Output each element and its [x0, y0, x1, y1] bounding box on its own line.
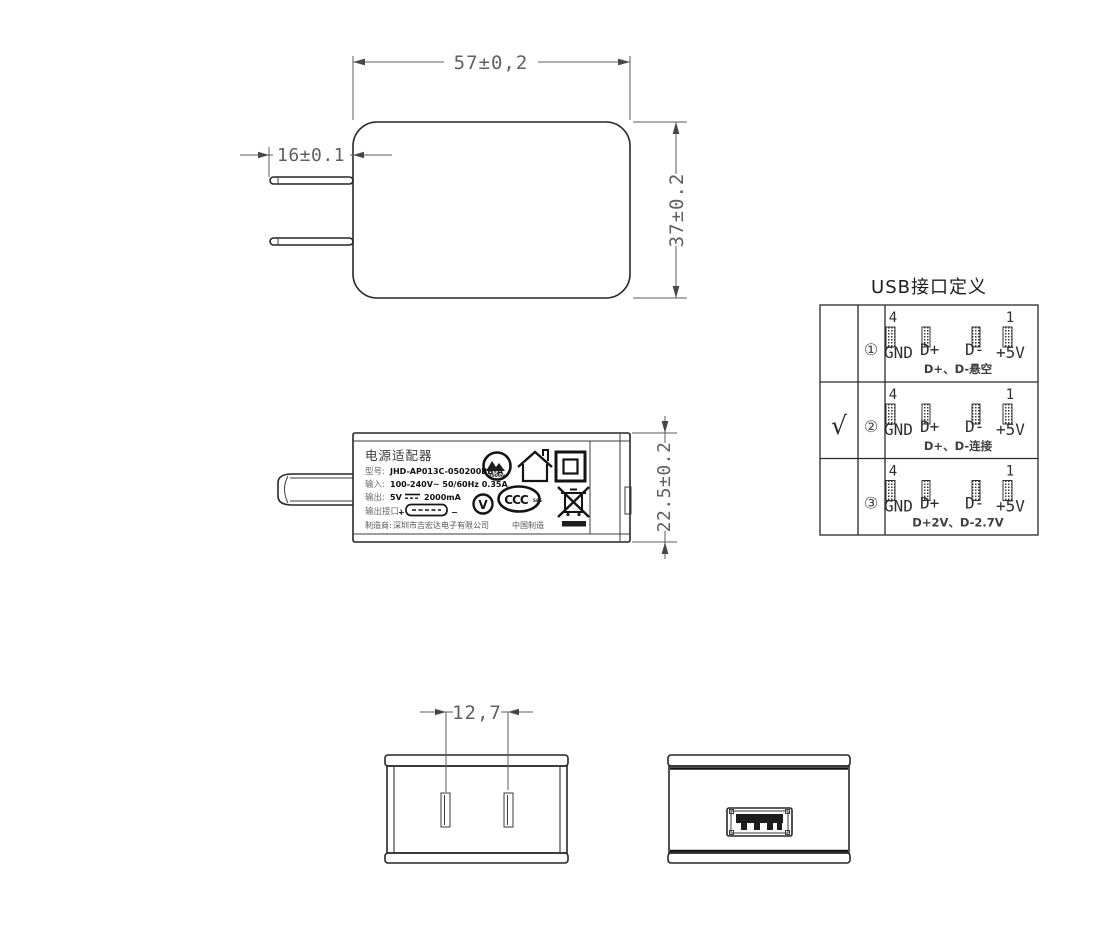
pin-number-1: 1 — [1006, 464, 1014, 480]
label-made-in: 中国制造 — [512, 520, 544, 530]
pin-label-gnd: GND — [884, 343, 913, 362]
efficiency-level-icon: V — [474, 495, 493, 514]
pin-label-5v: +5V — [996, 497, 1025, 516]
bottom-cap — [385, 853, 568, 863]
ccc-text: CCC — [504, 493, 529, 507]
bottom-cap — [668, 853, 850, 863]
dimension-width: 57±0,2 — [353, 52, 630, 120]
plug-blade-inner-curve — [285, 476, 289, 503]
row-index: ③ — [864, 494, 878, 513]
label-output-current: 2000mA — [424, 493, 462, 502]
label-input-value: 100-240V~ 50/60Hz 0.35A — [390, 480, 508, 489]
house-walls — [523, 464, 547, 481]
usb-tongue — [736, 814, 783, 823]
top-cap — [668, 755, 850, 766]
usb-contact-tab — [754, 823, 760, 830]
arrowhead — [618, 59, 630, 66]
pin-number-4: 4 — [889, 387, 897, 403]
table-row: ③ 4 1 GND D+ D- +5V D+2V、D-2.7V — [864, 464, 1025, 530]
pin-label-gnd: GND — [884, 497, 913, 516]
label-minus: − — [451, 508, 458, 517]
label-plus: + — [398, 508, 405, 517]
pin-label-dminus: D- — [965, 340, 984, 359]
row-index: ② — [864, 417, 878, 436]
dim-pin-length-text: 16±0.1 — [277, 145, 345, 166]
table-row: ① 4 1 GND D+ D- +5V D+、D-悬空 — [864, 310, 1025, 376]
class-ii-double-square-icon — [556, 452, 585, 481]
drawing-page: 57±0,2 37±0.2 16±0.1 — [0, 0, 1100, 925]
inner-square — [564, 460, 578, 474]
table-row: √ ② 4 1 GND D+ D- +5V D+、D-连接 — [831, 387, 1025, 453]
dimension-pin-pitch: 12,7 — [420, 702, 533, 792]
usb-contact-tab — [767, 823, 773, 830]
label-title: 电源适配器 — [365, 448, 433, 463]
arrowhead — [662, 542, 669, 554]
body-outline — [387, 766, 567, 853]
pin-slot-left — [441, 793, 450, 827]
pin-label-dminus: D- — [965, 417, 984, 436]
side-view: 22.5±0.2 电源适配器 型号: JHD-AP013C-050200BB-A… — [278, 416, 677, 559]
arrowhead — [353, 152, 364, 158]
label-output-voltage: 5V — [390, 493, 403, 502]
dimension-height: 37±0.2 — [633, 122, 688, 298]
usb-pin-table: USB接口定义 ① 4 1 GND D+ D- +5V D+、D-悬空 √ ② … — [820, 277, 1038, 535]
label-input-key: 输入: — [365, 479, 385, 490]
usb-contact-tab — [741, 823, 747, 830]
pin-label-dplus: D+ — [920, 494, 939, 513]
pin-number-1: 1 — [1006, 310, 1014, 326]
altitude-2000m-icon: 2000m — [484, 453, 511, 480]
arrowhead — [662, 421, 669, 433]
pin-number-1: 1 — [1006, 387, 1014, 403]
pin-label-dplus: D+ — [920, 417, 939, 436]
pin-label-gnd: GND — [884, 420, 913, 439]
pin-label-dplus: D+ — [920, 340, 939, 359]
dimension-pin-length: 16±0.1 — [240, 145, 392, 177]
pin-slot-right — [504, 793, 513, 827]
label-port-key: 输出接口: — [365, 506, 402, 517]
dim-width-text: 57±0,2 — [454, 52, 529, 74]
usb-table-title: USB接口定义 — [871, 277, 987, 298]
outer-square — [556, 452, 585, 481]
plug-blade-side — [278, 474, 353, 505]
plug-pin-top — [270, 177, 353, 184]
plug-pin-bottom — [270, 238, 353, 245]
pin-label-5v: +5V — [996, 343, 1025, 362]
arrowhead — [353, 59, 365, 66]
weee-bar — [562, 521, 586, 527]
front-view: 57±0,2 37±0.2 16±0.1 — [240, 52, 688, 298]
efficiency-text: V — [478, 498, 488, 512]
row-note: D+2V、D-2.7V — [912, 516, 1003, 530]
altitude-mountains — [486, 461, 505, 471]
label-mfr-key: 制造商: — [365, 520, 392, 530]
pin-label-5v: +5V — [996, 420, 1025, 439]
usb-port — [727, 808, 792, 836]
row-note: D+、D-悬空 — [924, 362, 992, 376]
label-mfr-value: 深圳市吉宏达电子有限公司 — [393, 520, 489, 530]
label-output-key: 输出: — [365, 492, 385, 503]
bottom-view-plug-face: 12,7 — [385, 702, 568, 863]
top-cap — [385, 755, 568, 766]
arrowhead — [673, 286, 680, 298]
ccc-mark-icon: CCC S&E — [499, 487, 543, 512]
pin-number-4: 4 — [889, 310, 897, 326]
arrowhead — [673, 122, 680, 134]
arrowhead — [435, 709, 446, 715]
row-check: √ — [831, 411, 847, 440]
dim-pin-pitch-text: 12,7 — [452, 702, 502, 724]
pin-label-dminus: D- — [965, 494, 984, 513]
usb-contact-tab — [777, 823, 782, 830]
label-model-key: 型号: — [365, 467, 385, 477]
ratings-label: 电源适配器 型号: JHD-AP013C-050200BB-A 输入: 100-… — [365, 448, 589, 530]
altitude-text: 2000m — [488, 473, 506, 479]
arrowhead — [258, 152, 269, 158]
dim-thickness-text: 22.5±0.2 — [654, 442, 675, 533]
bin-wheel — [577, 513, 580, 516]
bottom-view-usb-face — [668, 755, 850, 863]
row-note: D+、D-连接 — [924, 439, 993, 453]
pin-number-4: 4 — [889, 464, 897, 480]
dim-height-text: 37±0.2 — [666, 173, 688, 248]
bin-wheel — [566, 513, 569, 516]
row-index: ① — [864, 340, 878, 359]
adapter-body-front — [353, 122, 630, 298]
adapter-technical-drawing: 57±0,2 37±0.2 16±0.1 — [0, 0, 1100, 925]
indoor-use-house-icon — [518, 450, 552, 481]
ccc-sub-text: S&E — [533, 498, 542, 503]
arrowhead — [508, 709, 519, 715]
body-outline — [669, 766, 849, 853]
dc-symbol-icon — [405, 495, 420, 499]
usb-connector-icon — [406, 505, 447, 516]
dimension-thickness: 22.5±0.2 — [632, 416, 677, 559]
weee-bin-icon — [558, 487, 589, 527]
